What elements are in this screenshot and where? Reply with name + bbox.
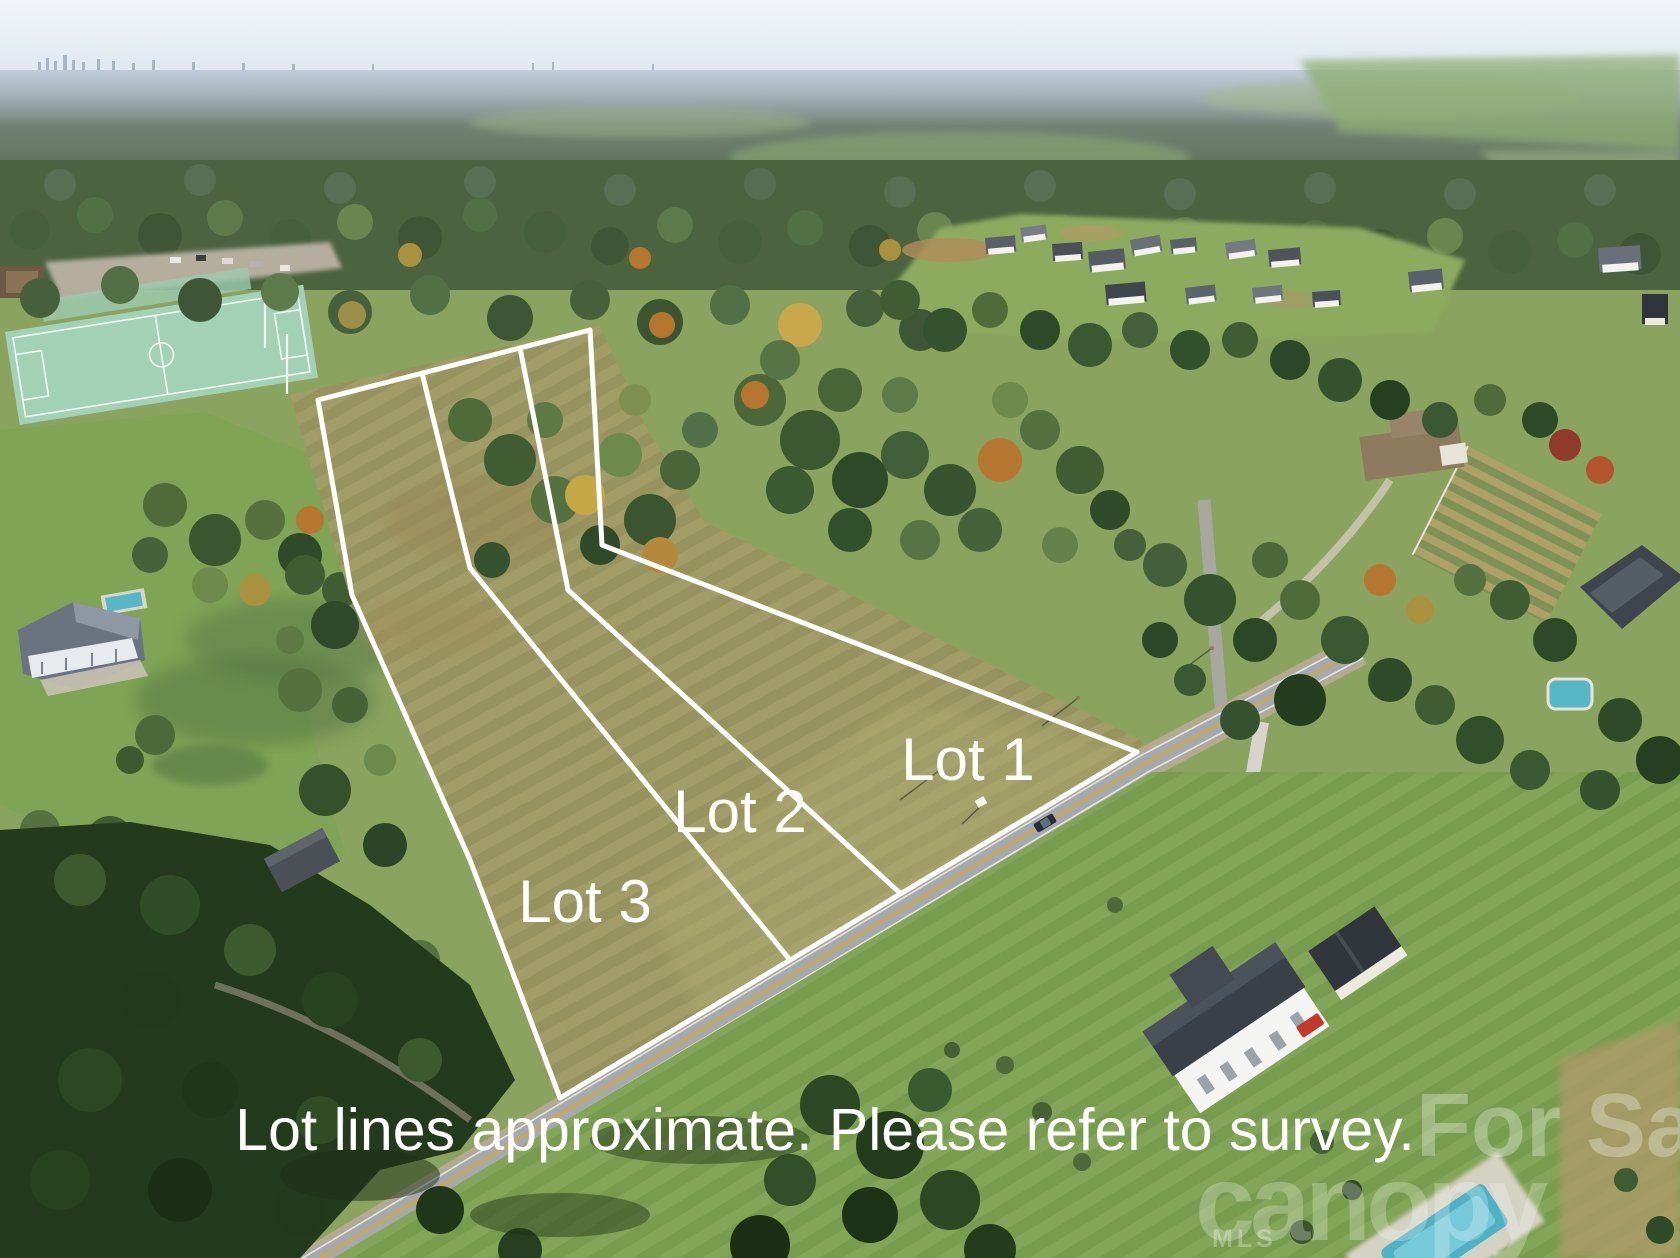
lot-3-label: Lot 3	[518, 868, 651, 935]
lot-2-label: Lot 2	[673, 778, 806, 845]
aerial-photo-canvas: Lot 1 Lot 2 Lot 3 Lot lines approximate.…	[0, 0, 1680, 1258]
watermark-mls: MLS	[1212, 1225, 1277, 1253]
trees-right-of-lot1	[682, 340, 1146, 563]
watermark-for-sale: For Sale	[1416, 1076, 1680, 1176]
aerial-photo: Lot 1 Lot 2 Lot 3 Lot lines approximate.…	[0, 0, 1680, 1258]
lot-1-label: Lot 1	[901, 726, 1034, 793]
